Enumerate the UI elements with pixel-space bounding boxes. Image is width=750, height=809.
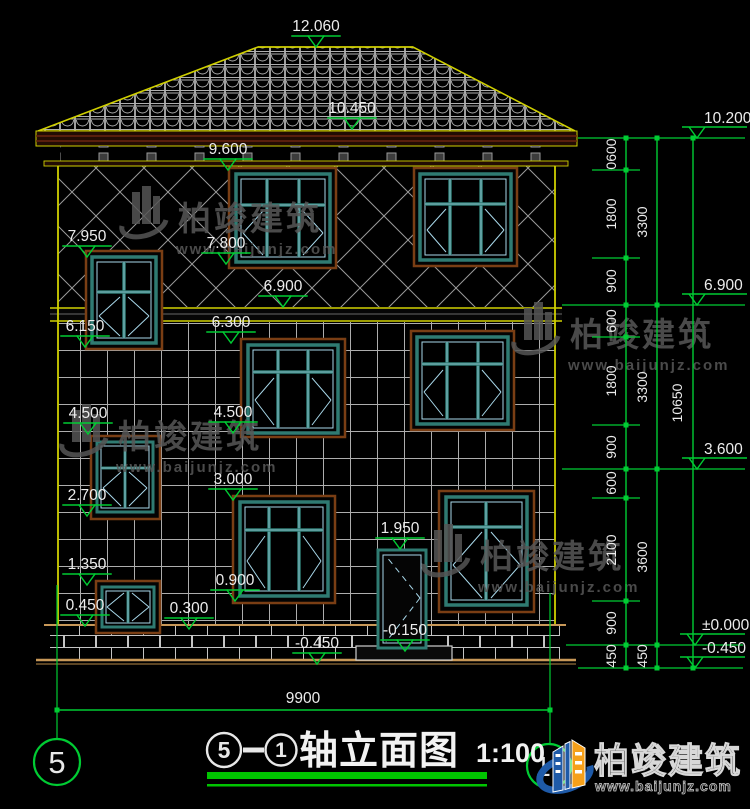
width-dimension-text: 9900: [286, 690, 321, 707]
svg-text:3.600: 3.600: [704, 441, 743, 458]
svg-text:7.950: 7.950: [68, 228, 107, 245]
svg-text:7.800: 7.800: [207, 235, 246, 252]
eave-dentil-row: [60, 146, 560, 161]
svg-text:3300: 3300: [634, 206, 650, 237]
svg-text:450: 450: [634, 644, 650, 668]
svg-text:450: 450: [603, 644, 619, 668]
svg-text:6.900: 6.900: [704, 277, 743, 294]
svg-text:10650: 10650: [669, 383, 685, 422]
brand-logo-url: www.baijunjz.com: [594, 778, 732, 794]
svg-text:0600: 0600: [603, 138, 619, 169]
brand-logo-text: 柏竣建筑: [594, 741, 742, 781]
svg-text:3600: 3600: [634, 541, 650, 572]
svg-text:6.300: 6.300: [212, 314, 251, 331]
window-3f-right: [414, 168, 517, 266]
svg-text:1800: 1800: [603, 365, 619, 396]
brand-logo: 柏竣建筑 www.baijunjz.com: [536, 740, 742, 796]
level-flag: 10.200: [682, 110, 750, 138]
svg-text:600: 600: [603, 471, 619, 495]
level-flag: -0.450: [680, 640, 746, 668]
svg-text:4.500: 4.500: [214, 404, 253, 421]
title-underline-thick: [207, 772, 487, 779]
svg-text:600: 600: [603, 309, 619, 333]
watermark-url: www.baijunjz.com: [477, 579, 639, 596]
svg-text:1800: 1800: [603, 198, 619, 229]
svg-text:0.450: 0.450: [66, 597, 105, 614]
svg-text:±0.000: ±0.000: [702, 617, 750, 634]
svg-text:1.950: 1.950: [381, 520, 420, 537]
svg-text:3300: 3300: [634, 371, 650, 402]
right-level-flags: 10.200 6.900 3.600 ±0.000 -0.450: [680, 110, 750, 668]
svg-text:1: 1: [275, 739, 287, 762]
eave-cornice: [36, 131, 577, 166]
svg-text:4.500: 4.500: [69, 405, 108, 422]
roof-tile-surface: [38, 47, 575, 131]
drawing-scale: 1:100: [476, 738, 545, 768]
level-flag: 3.600: [682, 441, 747, 469]
svg-text:-0.450: -0.450: [702, 640, 746, 657]
hip-roof: [38, 47, 575, 131]
window-1f-small-left: [96, 581, 160, 633]
watermark-text: 柏竣建筑: [178, 200, 322, 237]
svg-text:0.900: 0.900: [216, 572, 255, 589]
title-block: 5 1 轴立面图 1:100: [207, 730, 545, 787]
svg-text:5: 5: [218, 737, 231, 763]
svg-text:10.200: 10.200: [704, 110, 750, 127]
window-2f-right: [411, 331, 514, 430]
svg-text:0.300: 0.300: [170, 600, 209, 617]
svg-text:900: 900: [603, 269, 619, 293]
drawing-title: 轴立面图: [299, 730, 459, 773]
svg-text:6.150: 6.150: [66, 318, 105, 335]
svg-text:2100: 2100: [603, 534, 619, 565]
watermark-url: www.baijunjz.com: [115, 459, 277, 476]
svg-text:2.700: 2.700: [68, 487, 107, 504]
svg-text:1.350: 1.350: [68, 556, 107, 573]
svg-text:-0.150: -0.150: [383, 622, 427, 639]
title-underline-thin: [207, 784, 487, 787]
level-marker: 12.060: [292, 18, 340, 47]
svg-text:900: 900: [603, 611, 619, 635]
elevation-drawing-canvas: 柏竣建筑 www.baijunjz.com 柏竣建筑 www.baijunjz.…: [0, 0, 750, 809]
svg-text:10.450: 10.450: [328, 100, 376, 117]
svg-text:-0.450: -0.450: [295, 635, 339, 652]
svg-text:9.600: 9.600: [209, 141, 248, 158]
svg-text:12.060: 12.060: [292, 18, 340, 35]
svg-text:900: 900: [603, 435, 619, 459]
axis-bubble-left-number: 5: [48, 745, 65, 780]
eave-trim-band: [44, 161, 568, 166]
svg-text:3.000: 3.000: [214, 471, 253, 488]
eave-fascia-band: [36, 131, 577, 146]
level-flag: 6.900: [682, 277, 747, 305]
drawing-svg: 柏竣建筑 www.baijunjz.com 柏竣建筑 www.baijunjz.…: [0, 0, 750, 809]
watermark-url: www.baijunjz.com: [175, 241, 337, 258]
svg-text:6.900: 6.900: [264, 278, 303, 295]
